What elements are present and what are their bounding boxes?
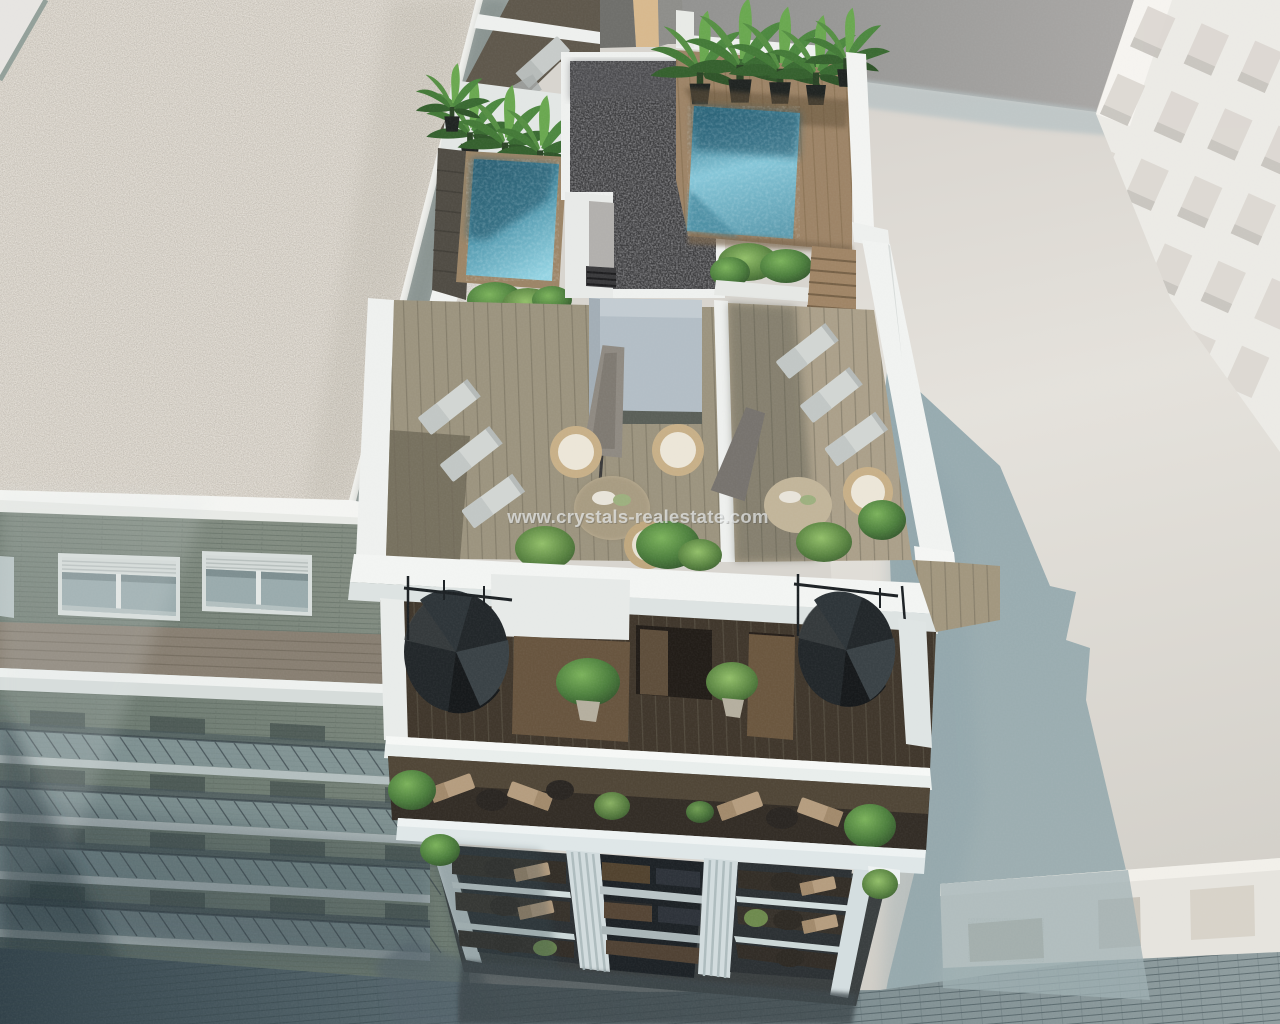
svg-text:www.crystals-realestate.com: www.crystals-realestate.com — [506, 506, 768, 527]
